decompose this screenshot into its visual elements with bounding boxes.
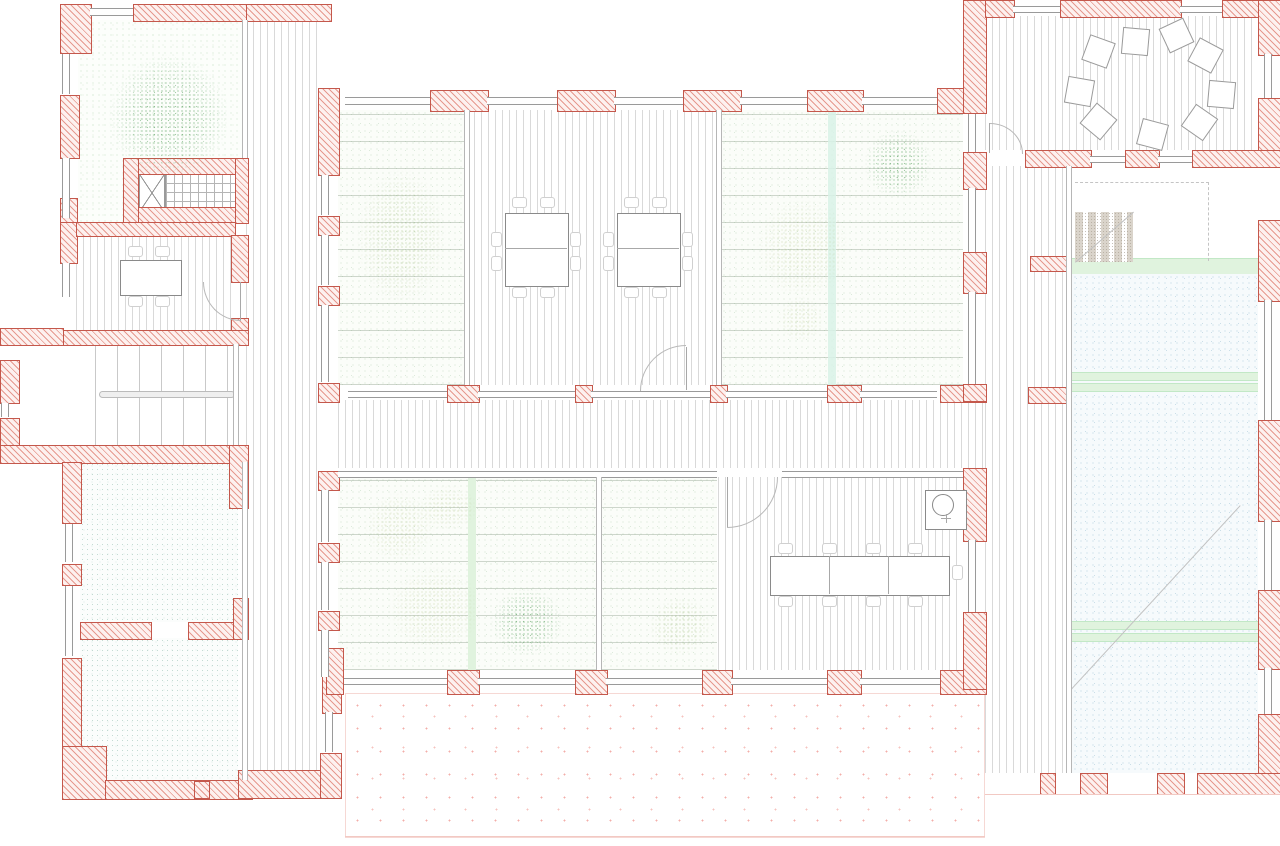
window-glazing	[862, 97, 937, 105]
wall-segment	[827, 385, 862, 403]
wall-segment	[1125, 150, 1160, 168]
corridor-glazing	[860, 391, 937, 398]
window-glazing	[740, 97, 807, 105]
window-glazing	[1264, 668, 1272, 714]
wall-segment	[194, 781, 210, 799]
chair	[512, 197, 527, 208]
wall-segment	[827, 670, 862, 695]
wall-segment	[246, 4, 332, 22]
door-leaf	[240, 282, 241, 320]
window-glazing	[62, 54, 70, 94]
wall-segment	[1258, 0, 1280, 56]
window-glazing	[65, 524, 73, 562]
wall-segment	[1197, 773, 1280, 795]
glass-partition	[596, 477, 602, 670]
wall-segment	[62, 658, 82, 748]
corridor-glazing	[348, 391, 447, 398]
window-glazing	[62, 263, 70, 297]
plant	[638, 586, 723, 666]
window-glazing	[321, 630, 329, 677]
chair	[540, 287, 555, 298]
ramp-landing-band-mid-2	[1072, 383, 1258, 392]
table-divider-line	[888, 556, 889, 594]
glass-partition	[233, 344, 239, 445]
chair	[155, 296, 170, 307]
chair	[952, 565, 963, 580]
wall-segment	[235, 158, 249, 224]
glass-partition	[242, 462, 248, 780]
wall-segment	[702, 670, 733, 695]
chair	[652, 197, 667, 208]
wall-segment	[188, 622, 235, 640]
chair	[682, 256, 693, 271]
glass-partition	[1066, 166, 1072, 773]
table	[770, 556, 950, 596]
chair	[866, 543, 881, 554]
wall-segment	[430, 90, 489, 112]
wall-segment	[963, 152, 987, 190]
wall-segment	[1258, 220, 1280, 302]
chair	[652, 287, 667, 298]
floor-cushion	[1064, 76, 1095, 107]
window-glazing	[62, 158, 70, 218]
wall-segment	[683, 90, 742, 112]
wall-segment	[1258, 420, 1280, 522]
ramp-hall-floor	[1072, 274, 1258, 773]
wall-segment	[62, 564, 82, 586]
window-glazing	[321, 305, 329, 382]
corridor-glazing	[782, 471, 963, 478]
corridor-glazing	[726, 391, 827, 398]
wall-segment	[1258, 590, 1280, 670]
chair	[155, 246, 170, 257]
wall-segment	[318, 611, 340, 631]
chair	[624, 197, 639, 208]
window-glazing	[1013, 6, 1060, 13]
wall-segment	[0, 418, 20, 447]
window-glazing	[90, 8, 133, 16]
wall-segment	[318, 471, 340, 491]
chair	[778, 596, 793, 607]
wall-segment	[985, 0, 1015, 18]
plant	[852, 118, 944, 210]
plant	[770, 288, 832, 350]
chair	[822, 543, 837, 554]
wall-segment	[60, 4, 92, 54]
wall-segment	[0, 360, 20, 404]
wall-segment	[231, 235, 249, 283]
east-west-corridor-floor	[338, 400, 983, 468]
window-glazing	[731, 678, 827, 685]
wall-segment	[963, 252, 987, 294]
threshold-line	[985, 794, 1280, 795]
plant	[372, 550, 497, 668]
south-terrace-paving	[345, 693, 985, 838]
chair	[682, 232, 693, 247]
glass-partition	[464, 110, 470, 385]
window-glazing	[321, 175, 329, 215]
window-glazing	[478, 678, 575, 685]
corridor-glazing	[591, 391, 710, 398]
wall-segment	[447, 385, 480, 403]
window-glazing	[1090, 156, 1125, 163]
wall-segment	[1060, 0, 1182, 18]
wall-segment	[318, 88, 340, 176]
chair	[128, 296, 143, 307]
table	[617, 213, 681, 287]
wall-segment	[80, 622, 152, 640]
window-glazing	[968, 292, 976, 384]
window-glazing	[1, 403, 9, 417]
chair	[778, 543, 793, 554]
wall-segment	[557, 90, 616, 112]
chair	[603, 256, 614, 271]
chair	[570, 232, 581, 247]
window-glazing	[344, 678, 447, 685]
wall-segment	[318, 286, 340, 306]
north-south-corridor-floor	[246, 20, 318, 780]
chair	[512, 287, 527, 298]
window-glazing	[606, 678, 702, 685]
window-glazing	[1180, 6, 1222, 13]
chair	[491, 256, 502, 271]
ramp-landing-band-south-1	[1072, 621, 1258, 630]
chair	[624, 287, 639, 298]
plant	[478, 576, 576, 668]
wall-segment	[1192, 150, 1280, 168]
wall-segment	[575, 670, 608, 695]
window-glazing	[860, 678, 940, 685]
wall-segment	[105, 780, 253, 800]
wall-segment	[0, 445, 238, 464]
wall-segment	[1025, 150, 1092, 168]
table	[120, 260, 182, 296]
service-room-north-floor	[80, 462, 238, 622]
wall-segment	[807, 90, 864, 112]
wall-segment	[62, 746, 107, 800]
wall-segment	[318, 543, 340, 563]
chair	[822, 596, 837, 607]
void-dashed-line	[1075, 182, 1209, 261]
chair	[866, 596, 881, 607]
window-glazing	[614, 97, 683, 105]
wall-segment	[60, 95, 80, 159]
window-glazing	[325, 712, 333, 752]
floor-plan	[0, 0, 1280, 846]
window-glazing	[1158, 156, 1192, 163]
door-leaf	[686, 347, 687, 390]
window-glazing	[968, 188, 976, 252]
chair	[908, 596, 923, 607]
table-divider-line	[505, 248, 567, 249]
chair	[491, 232, 502, 247]
window-glazing	[1264, 520, 1272, 590]
wall-segment	[447, 670, 480, 695]
wall-segment	[1157, 773, 1185, 795]
chair	[540, 197, 555, 208]
table-divider-line	[617, 248, 679, 249]
window-glazing	[321, 562, 329, 610]
plant	[88, 33, 250, 201]
plant	[340, 145, 462, 330]
terrace-edge-line	[345, 836, 985, 837]
wall-segment	[1080, 773, 1108, 795]
window-glazing	[321, 490, 329, 542]
table-divider-line	[829, 556, 830, 594]
table	[505, 213, 569, 287]
window-glazing	[968, 540, 976, 612]
chair	[570, 256, 581, 271]
kitchenette-sink-bowl	[932, 494, 954, 516]
chair	[603, 232, 614, 247]
floor-cushion	[1121, 27, 1150, 56]
wall-segment	[1040, 773, 1056, 795]
wall-segment	[318, 383, 340, 403]
window-glazing	[65, 586, 73, 656]
wall-segment	[963, 384, 987, 402]
wall-segment	[963, 612, 987, 690]
glass-partition	[716, 110, 722, 385]
window-glazing	[345, 97, 430, 105]
window-glazing	[968, 114, 976, 152]
chair	[908, 543, 923, 554]
kitchenette-faucet	[946, 514, 947, 523]
floor-cushion	[1207, 80, 1236, 109]
window-glazing	[321, 235, 329, 285]
window-glazing	[487, 97, 557, 105]
corridor-glazing	[478, 391, 575, 398]
wall-segment	[60, 330, 249, 346]
wall-segment	[320, 753, 342, 799]
corridor-glazing	[338, 471, 717, 478]
wall-segment	[62, 462, 82, 524]
staircase-handrail	[99, 391, 235, 398]
door-leaf	[989, 123, 990, 153]
wall-segment	[76, 222, 236, 237]
wall-segment	[318, 216, 340, 236]
ramp-landing-band-mid-1	[1072, 372, 1258, 381]
wall-segment	[0, 328, 64, 346]
door-leaf	[727, 477, 728, 527]
wall-segment	[963, 0, 987, 114]
window-glazing	[1264, 300, 1272, 420]
ramp-landing-band-south-2	[1072, 633, 1258, 642]
chair	[128, 246, 143, 257]
window-glazing	[1264, 54, 1272, 98]
